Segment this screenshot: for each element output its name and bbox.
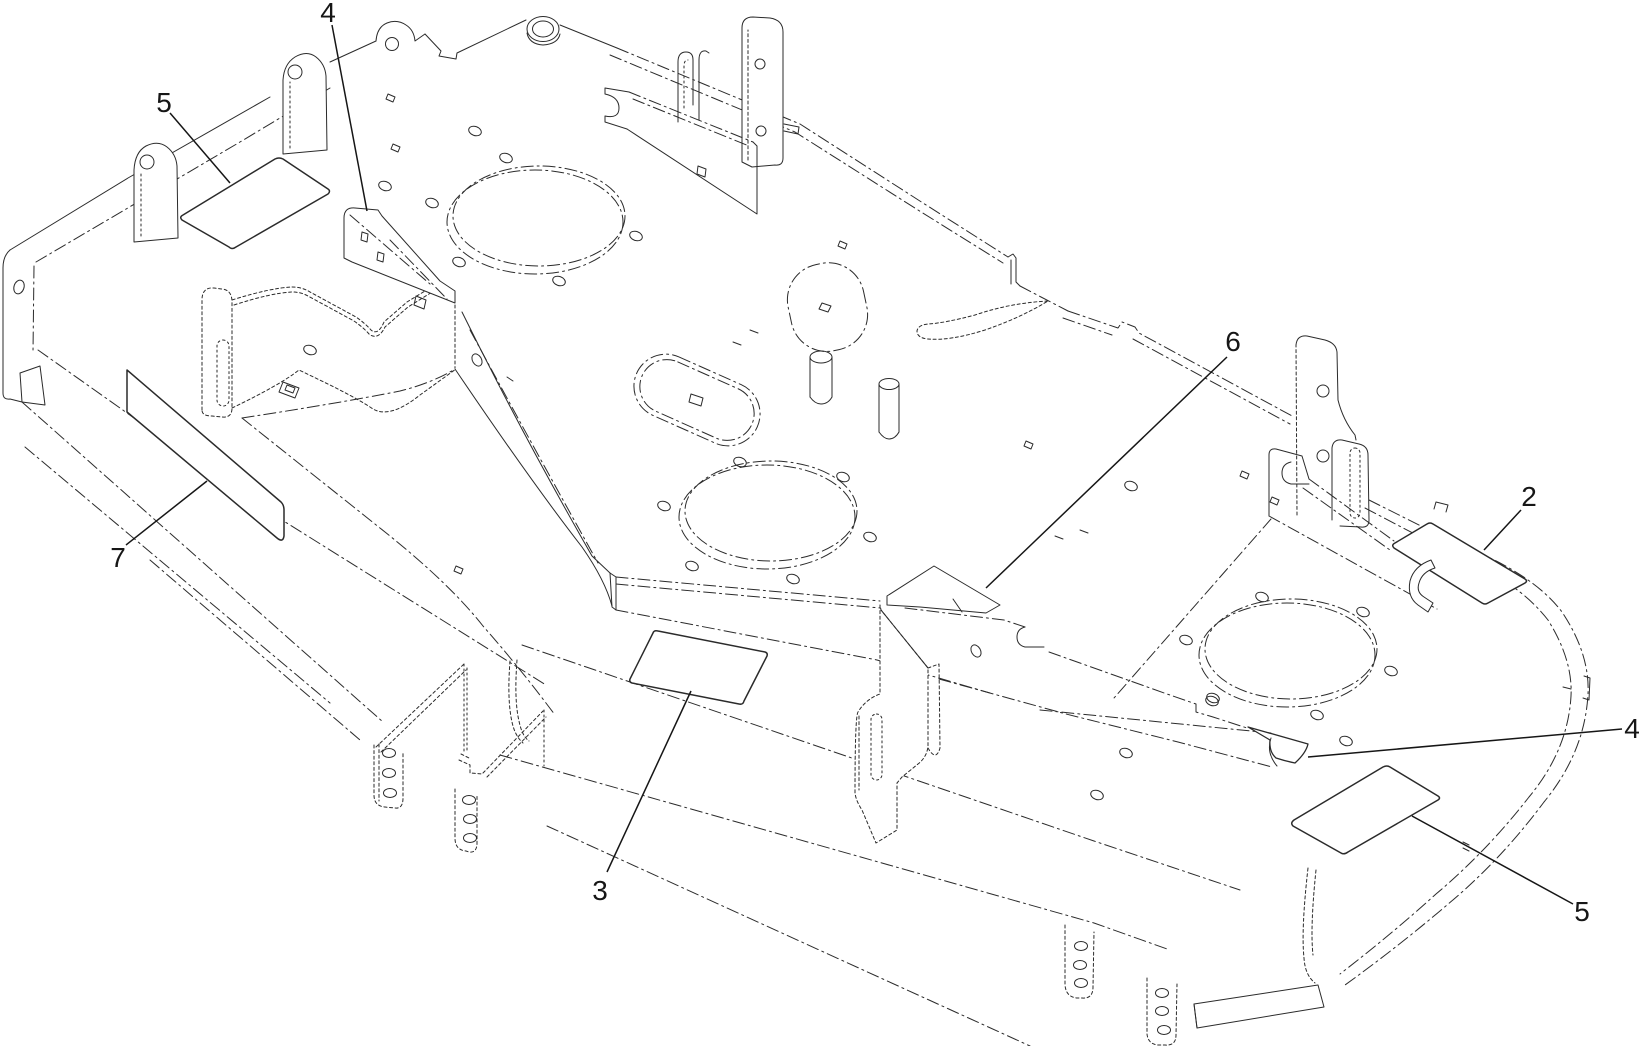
svg-text:7: 7 bbox=[110, 542, 126, 573]
svg-text:5: 5 bbox=[1574, 896, 1590, 927]
svg-text:2: 2 bbox=[1521, 481, 1537, 512]
svg-text:6: 6 bbox=[1225, 326, 1241, 357]
svg-text:4: 4 bbox=[1624, 713, 1640, 744]
svg-text:4: 4 bbox=[320, 0, 336, 28]
svg-text:5: 5 bbox=[156, 87, 172, 118]
svg-text:3: 3 bbox=[592, 875, 608, 906]
